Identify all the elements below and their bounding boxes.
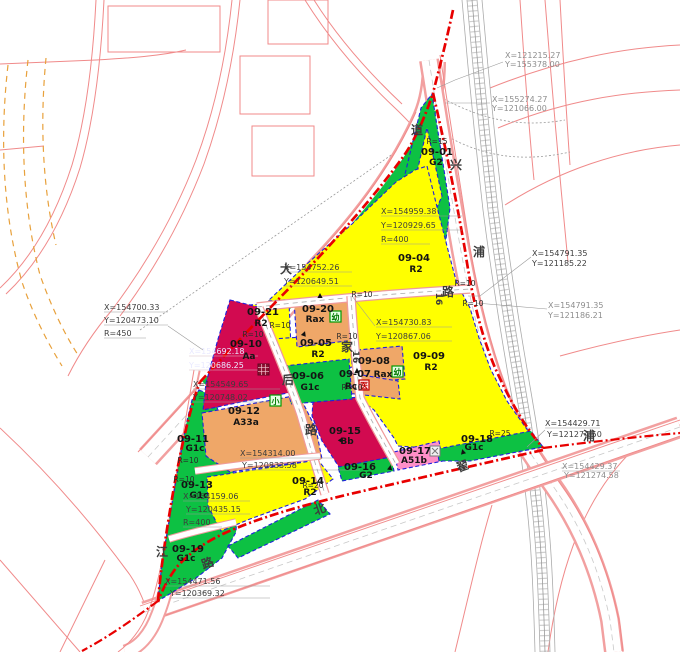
- box-x-icon: [430, 446, 440, 456]
- road-char: 道: [411, 122, 423, 137]
- radius-label: R=10: [173, 475, 194, 484]
- coord-y: Y=120748.02: [192, 393, 248, 402]
- road-char: 后: [282, 372, 294, 387]
- road-char: 江: [156, 544, 168, 559]
- parcel-label-code: 09-07: [339, 369, 371, 380]
- road-char: 大: [280, 261, 292, 276]
- coord-y: Y=120833.58: [241, 461, 297, 470]
- parcel-label-code: 09-04: [398, 253, 430, 264]
- coord-x: X=154429.71: [545, 419, 600, 428]
- road-char: 路: [305, 422, 318, 437]
- coord-r: R=400: [183, 518, 211, 527]
- parcel-label-use: G1c: [186, 444, 205, 454]
- road-char: 浦: [583, 428, 595, 443]
- coord-x: X=154429.37: [562, 462, 617, 471]
- coord-y: Y=120867.06: [375, 332, 431, 341]
- parcel-label-code: 09-20: [302, 304, 334, 315]
- svg-text:幼: 幼: [394, 367, 402, 377]
- coord-y: Y=120929.65: [380, 221, 436, 230]
- coord-x: X=154159.06: [183, 492, 238, 501]
- radius-label: R=10: [351, 290, 372, 299]
- parcel-label-use: R2: [409, 265, 422, 275]
- parcel-label-code: 09-05: [300, 338, 332, 349]
- coord-y: Y=121274.58: [563, 471, 619, 480]
- rail-reserve-orange-dashes: [4, 58, 78, 366]
- coord-y: Y=120649.51: [283, 277, 339, 286]
- coord-y: Y=121185.22: [531, 259, 587, 268]
- parcel-label-use: R2: [311, 350, 324, 360]
- parcel-label-code: 09-06: [292, 371, 324, 382]
- svg-text:小: 小: [271, 396, 280, 406]
- parcel-label-use: Rax: [306, 315, 325, 325]
- parcel-label-use: A51b: [401, 456, 427, 466]
- radius-label: R=10: [341, 383, 362, 392]
- coord-y: Y=120369.32: [169, 589, 225, 598]
- parcel-label-code: 09-09: [413, 351, 445, 362]
- radius-label: R=10: [462, 299, 483, 308]
- parcel-label-code: 09-08: [358, 356, 390, 367]
- radius-label: R=20: [302, 481, 323, 490]
- coord-x: X=155274.27: [492, 95, 547, 104]
- road-char: 浦: [473, 244, 485, 259]
- coord-y: Y=120435.15: [185, 505, 241, 514]
- coord-x: X=154700.33: [104, 303, 159, 312]
- coord-r: R=400: [381, 235, 409, 244]
- coord-x: X=154549.65: [193, 380, 248, 389]
- coord-x: X=154471.56: [165, 577, 220, 586]
- parcel-label-code: 09-21: [247, 307, 279, 318]
- coord-x: X=121215.27: [505, 51, 560, 60]
- parcel-label-use: Bb: [340, 437, 354, 447]
- kindergarten-icon: 幼: [392, 366, 403, 377]
- market-grid-icon: [258, 364, 269, 375]
- road-char: 兴: [450, 157, 462, 172]
- radius-label: R=10: [454, 279, 475, 288]
- planning-map: 幼 幼 小 医 09-01 G2 09-04 R2 09-05 R2 09-06: [0, 0, 680, 652]
- coord-x: X=154752.26: [284, 263, 339, 272]
- parcel-label-use: R2: [424, 363, 437, 373]
- coord-x: X=154791.35: [548, 301, 603, 310]
- coord-y: Y=120473.10: [103, 316, 159, 325]
- parcel-label-use: G1c: [301, 383, 320, 393]
- planning-map-canvas: 幼 幼 小 医 09-01 G2 09-04 R2 09-05 R2 09-06: [0, 0, 680, 652]
- parcel-label-code: 09-12: [228, 406, 260, 417]
- parcel-label-code: 09-01: [421, 147, 453, 158]
- parcel-label-use: A33a: [233, 418, 259, 428]
- radius-label: R=10: [242, 330, 263, 339]
- radius-label: R=15: [426, 137, 447, 146]
- parcel-label-use: G1c: [465, 443, 484, 453]
- coord-x: X=154730.83: [376, 318, 431, 327]
- radius-label: R=25: [489, 429, 510, 438]
- radius-label: R=10: [269, 321, 290, 330]
- coord-x: X=154959.38: [381, 207, 436, 216]
- road-width-label: 16: [350, 351, 360, 364]
- coord-x: X=154692.18: [189, 347, 244, 356]
- coord-y: Y=120686.25: [188, 361, 244, 370]
- coord-y: Y=121066.00: [491, 104, 547, 113]
- road-width-label: 16: [433, 293, 443, 306]
- coord-y: Y=155378.00: [504, 60, 560, 69]
- primary-school-icon: 小: [270, 395, 281, 406]
- coord-y: Y=121186.21: [547, 311, 603, 320]
- coord-x: X=154314.00: [240, 449, 295, 458]
- parcel-label-use: G2: [359, 471, 373, 481]
- parcel-label-code: 09-15: [329, 426, 361, 437]
- parcel-label-use: G1c: [177, 554, 196, 564]
- radius-label: R=10: [177, 456, 198, 465]
- parcel-label-use: Rax: [374, 370, 393, 380]
- parcel-label-use: G2: [429, 158, 443, 168]
- coord-x: X=154791.35: [532, 249, 587, 258]
- parcel-label-use: R2: [254, 319, 267, 329]
- coord-r: R=450: [104, 329, 132, 338]
